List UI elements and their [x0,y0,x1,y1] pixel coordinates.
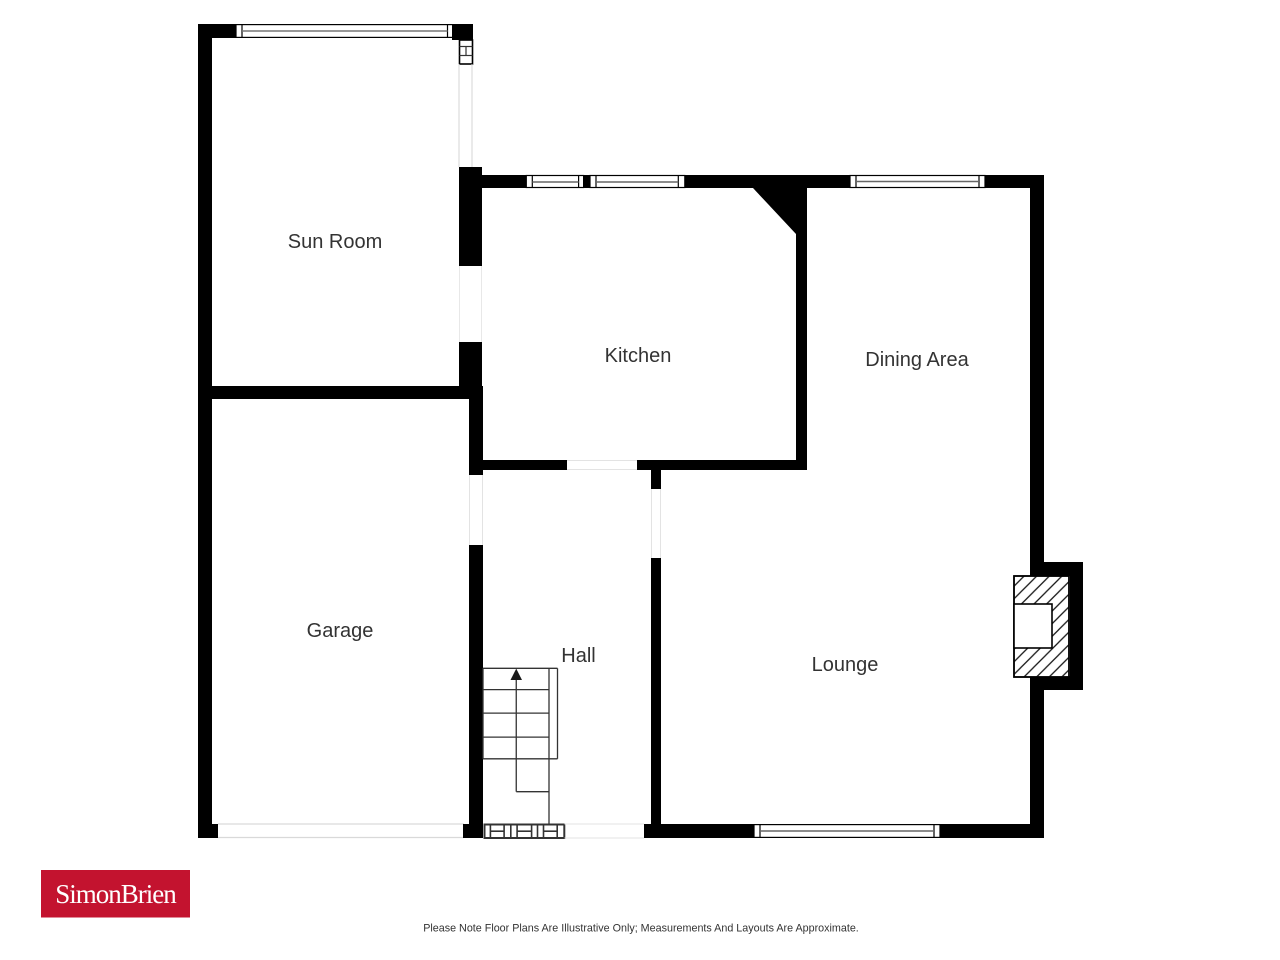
svg-text:Hall: Hall [561,645,595,667]
svg-text:Please Note Floor Plans Are Il: Please Note Floor Plans Are Illustrative… [423,923,859,935]
svg-text:Garage: Garage [307,620,374,642]
svg-text:Lounge: Lounge [812,654,879,676]
svg-text:Dining Area: Dining Area [865,349,969,371]
svg-text:SimonBrien: SimonBrien [55,879,177,909]
svg-text:Sun Room: Sun Room [288,231,383,253]
svg-text:Kitchen: Kitchen [605,345,672,367]
